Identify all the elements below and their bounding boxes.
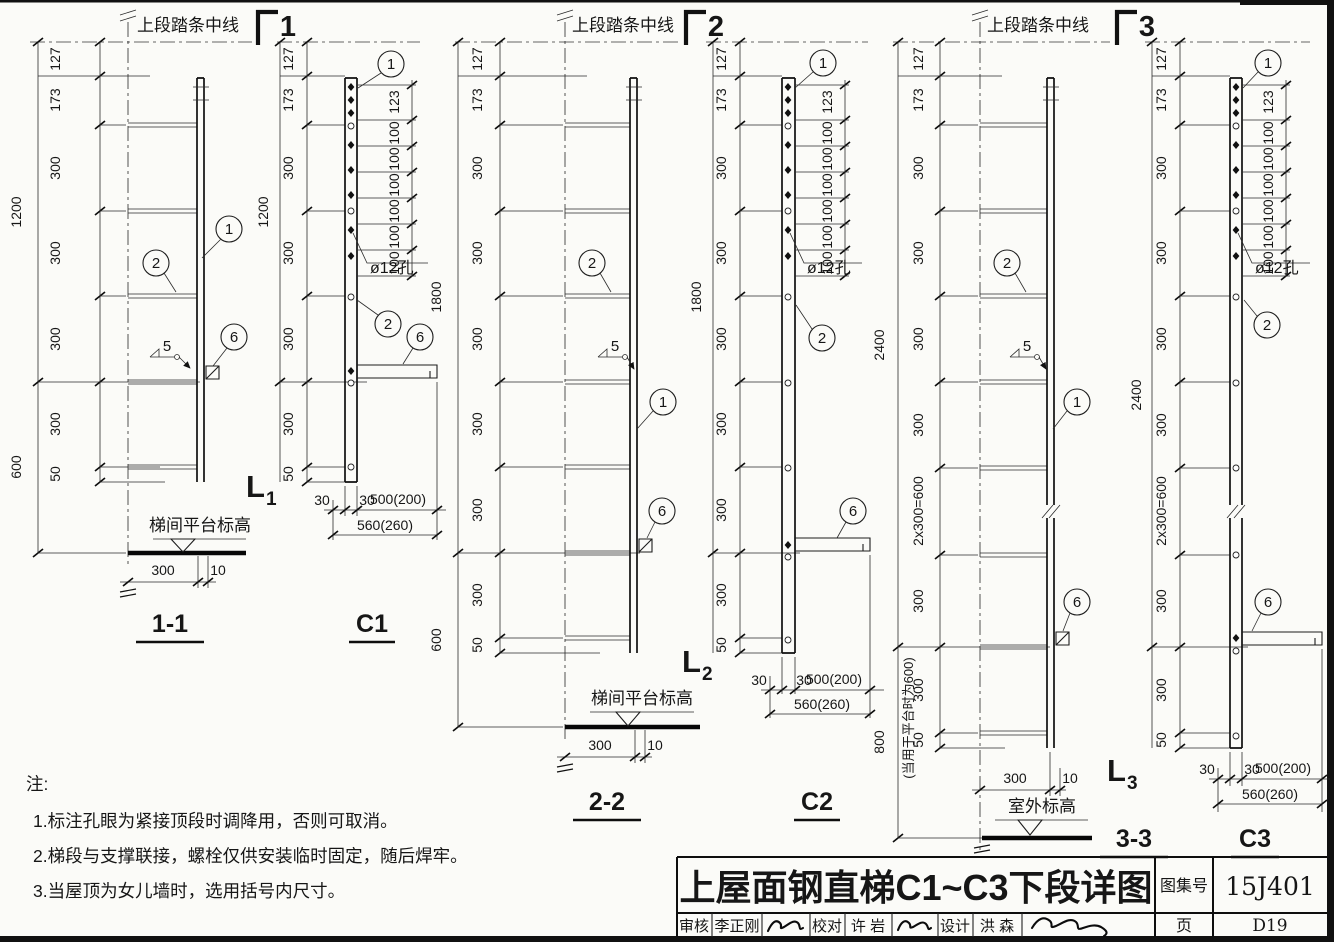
dim-label: 600 (428, 628, 444, 652)
dim-label: 100 (386, 225, 402, 249)
dim-label: 10 (1062, 770, 1078, 786)
atlas-label: 图集号 (1160, 877, 1208, 895)
signature (768, 921, 803, 931)
dim-label: 100 (819, 147, 835, 171)
section-number: 3 (1139, 11, 1155, 43)
callout-number: 2 (1003, 255, 1011, 272)
dim-label: 500(200) (370, 491, 426, 507)
page-number: D19 (1252, 916, 1287, 936)
dim-label: 50 (47, 466, 63, 482)
weld-symbol: 5 (1010, 338, 1046, 369)
callout-number: 2 (588, 255, 596, 272)
dim-label: 300 (713, 241, 729, 265)
check-label: 校对 (812, 918, 842, 935)
top-centerline-label: 上段踏条中线 (137, 16, 239, 35)
support-arm (357, 365, 437, 378)
drawing-title: 上屋面钢直梯C1~C3下段详图 (679, 867, 1152, 908)
rungs (128, 123, 197, 469)
support-arm (1242, 632, 1322, 645)
dim-label: 800 (871, 730, 887, 754)
dim-label: 300 (910, 241, 926, 265)
rail (1230, 78, 1242, 748)
detail-c2: ø12孔 1800 127 173 300 300 300 300 300 30… (688, 38, 884, 820)
dim-label: 173 (910, 88, 926, 112)
dim-label: 300 (469, 156, 485, 180)
dim-label: 100 (1260, 121, 1276, 145)
weld-symbol: 5 (598, 338, 634, 369)
dim-label: 300 (910, 327, 926, 351)
top-centerline-label: 上段踏条中线 (572, 16, 674, 35)
ladder-mark: L (1107, 753, 1126, 788)
dim-label: 300 (469, 498, 485, 522)
elevation-marker (1018, 820, 1042, 835)
dim-label: 123 (386, 90, 402, 114)
dim-label: 100 (386, 199, 402, 223)
dim-label: 100 (1260, 147, 1276, 171)
dim-label: 300 (910, 678, 926, 702)
note-item: 1.标注孔眼为紧接顶段时调降用，否则可取消。 (33, 811, 398, 831)
dim-label: 100 (386, 147, 402, 171)
dim-label: 560(260) (1242, 786, 1298, 802)
dim-label: 300 (713, 412, 729, 436)
rungs (565, 123, 630, 640)
dim-label: 100 (386, 121, 402, 145)
view-title: 1-1 (152, 610, 188, 638)
dim-label: 300 (47, 241, 63, 265)
dim-label: 100 (819, 199, 835, 223)
dim-label: 300 (280, 412, 296, 436)
ladder-mark: L (682, 644, 701, 679)
auditor-name: 李正刚 (714, 918, 759, 935)
dim-label: 100 (1260, 173, 1276, 197)
elevation-3-3: 上段踏条中线 3 2400 800 (当用于平台时为600) 127 173 3… (871, 10, 1168, 857)
dim-label: 300 (280, 156, 296, 180)
dim-label: 300 (280, 241, 296, 265)
callout-number: 2 (818, 330, 826, 347)
dim-label: 300 (713, 327, 729, 351)
callout-number: 1 (225, 221, 233, 238)
dim-label: 100 (819, 121, 835, 145)
dim-label: 173 (280, 88, 296, 112)
dim-label: 300 (47, 156, 63, 180)
dim-label: 100 (819, 251, 835, 275)
dim-label: 600 (8, 455, 24, 479)
dim-label: 173 (713, 88, 729, 112)
dim-label: 127 (469, 47, 485, 71)
dim-label: 127 (1153, 47, 1169, 71)
ladder-mark-sub: 2 (702, 664, 713, 685)
dim-label: 100 (386, 251, 402, 275)
dim-label: 300 (1153, 241, 1169, 265)
dim-label: 10 (647, 737, 663, 753)
dim-label: 300 (588, 737, 612, 753)
dim-label: 2x300=600 (910, 476, 926, 546)
support-arm (795, 538, 870, 551)
view-title: 3-3 (1116, 825, 1152, 853)
rungs (980, 123, 1047, 735)
dim-label: 300 (469, 583, 485, 607)
dim-label: 300 (1153, 678, 1169, 702)
callout-number: 6 (1264, 594, 1272, 611)
dim-label: 1200 (8, 196, 24, 227)
section-number: 1 (280, 11, 296, 43)
dim-label: 127 (280, 47, 296, 71)
support-bracket (1056, 632, 1069, 645)
callout-number: 1 (1073, 394, 1081, 411)
callout-number: 1 (819, 55, 827, 72)
dim-label: 1800 (688, 281, 704, 312)
callout-number: 6 (1073, 594, 1081, 611)
weld-symbol: 5 (150, 338, 190, 368)
elevation-marker (171, 539, 195, 552)
weld-number: 5 (163, 338, 171, 355)
callout-number: 2 (384, 316, 392, 333)
stringer (197, 78, 204, 482)
dim-label: 300 (151, 562, 175, 578)
section-number: 2 (708, 11, 724, 43)
dim-label: 50 (280, 466, 296, 482)
dim-label: 1200 (255, 196, 271, 227)
stringer (630, 78, 637, 653)
notes: 注: 1.标注孔眼为紧接顶段时调降用，否则可取消。 2.梯段与支撑联接，螺栓仅供… (26, 774, 468, 901)
view-title: C2 (801, 788, 833, 816)
rail (782, 78, 795, 653)
dim-label: 300 (47, 412, 63, 436)
signature (1032, 918, 1107, 936)
dim-label: 10 (210, 562, 226, 578)
dim-label: 123 (819, 90, 835, 114)
dim-label: 560(260) (794, 696, 850, 712)
note-item: 3.当屋顶为女儿墙时，选用括号内尺寸。 (33, 881, 345, 901)
stringer (1047, 78, 1054, 748)
dim-label: 300 (469, 327, 485, 351)
dim-label: 500(200) (1255, 760, 1311, 776)
dim-label: 173 (1153, 88, 1169, 112)
dim-label: 300 (1153, 327, 1169, 351)
drawing-sheet: 上段踏条中线 1 1200 600 127 173 300 300 300 30… (0, 0, 1334, 942)
notes-heading: 注: (26, 774, 48, 794)
dim-label: 50 (1153, 732, 1169, 748)
section-cut-mark (1117, 12, 1137, 45)
dim-label: 50 (713, 637, 729, 653)
view-title: C3 (1239, 825, 1271, 853)
support-bracket (206, 366, 219, 379)
dim-label: 300 (1153, 413, 1169, 437)
dim-label: 127 (910, 47, 926, 71)
page-label: 页 (1176, 918, 1192, 935)
ladder-mark-sub: 3 (1127, 773, 1138, 794)
view-title: C1 (356, 610, 388, 638)
dim-label: 50 (469, 637, 485, 653)
callout-number: 2 (152, 255, 160, 272)
platform-label: 室外标高 (1008, 797, 1076, 816)
callout-number: 2 (1263, 317, 1271, 334)
dim-label: 300 (910, 156, 926, 180)
elevation-marker (616, 712, 640, 726)
callout-number: 6 (230, 329, 238, 346)
dim-label: 300 (713, 583, 729, 607)
audit-label: 审核 (679, 918, 709, 935)
dim-label: 2400 (871, 329, 887, 360)
callout-number: 1 (659, 394, 667, 411)
dim-label: 123 (1260, 90, 1276, 114)
checker-name: 许 岩 (851, 918, 885, 935)
dim-label: 50 (910, 732, 926, 748)
dim-label: 300 (1153, 589, 1169, 613)
dim-label: 30 (751, 672, 767, 688)
weld-number: 5 (1023, 338, 1031, 355)
detail-c3: ø12孔 2400 127 173 300 300 300 300 2x300=… (1128, 38, 1330, 857)
dim-label: 300 (47, 327, 63, 351)
dim-label: 127 (47, 47, 63, 71)
dim-label: 300 (713, 156, 729, 180)
elevation-1-1: 上段踏条中线 1 1200 600 127 173 300 300 300 30… (8, 10, 296, 642)
dim-label: 300 (280, 327, 296, 351)
dim-label: 300 (910, 589, 926, 613)
weld-number: 5 (611, 338, 619, 355)
dim-label: 100 (1260, 251, 1276, 275)
view-title: 2-2 (589, 788, 625, 816)
note-item: 2.梯段与支撑联接，螺栓仅供安装临时固定，随后焊牢。 (33, 846, 468, 866)
platform-label: 梯间平台标高 (591, 689, 693, 708)
ladder-mark: L (246, 469, 265, 504)
atlas-number: 15J401 (1225, 872, 1315, 901)
dim-note: (当用于平台时为600) (901, 657, 916, 778)
section-cut-mark (258, 12, 278, 45)
dim-label: 2400 (1128, 379, 1144, 410)
elevation-2-2: 上段踏条中线 2 1800 600 127 173 300 300 300 30… (428, 10, 724, 820)
callout-number: 6 (849, 503, 857, 520)
title-block: 上屋面钢直梯C1~C3下段详图 图集号 15J401 页 D19 审核 李正刚 … (677, 857, 1327, 937)
dim-label: 173 (469, 88, 485, 112)
dim-label: 100 (1260, 199, 1276, 223)
section-cut-mark (686, 12, 706, 45)
support-bracket (639, 539, 652, 552)
dim-label: 173 (47, 88, 63, 112)
dim-label: 30 (1199, 761, 1215, 777)
platform-label: 梯间平台标高 (149, 516, 251, 535)
ladder-mark-sub: 1 (266, 489, 277, 510)
dim-label: 100 (819, 173, 835, 197)
dim-label: 300 (910, 413, 926, 437)
bolt-holes (785, 83, 792, 549)
dim-label: 300 (1003, 770, 1027, 786)
signature (898, 921, 931, 930)
dim-label: 300 (1153, 156, 1169, 180)
top-centerline-label: 上段踏条中线 (987, 16, 1089, 35)
sheet-edges (0, 0, 1334, 942)
dim-label: 100 (819, 225, 835, 249)
detail-c1: ø12孔 1200 127 173 300 300 300 300 50 123… (255, 38, 446, 642)
dim-label: 100 (386, 173, 402, 197)
dim-label: 300 (469, 412, 485, 436)
dim-label: 1800 (428, 281, 444, 312)
design-label: 设计 (940, 918, 970, 935)
dim-label: 127 (713, 47, 729, 71)
callout-number: 1 (387, 56, 395, 73)
dim-label: 500(200) (806, 671, 862, 687)
dim-label: 560(260) (357, 517, 413, 533)
callout-number: 1 (1264, 55, 1272, 72)
dim-label: 2x300=600 (1153, 476, 1169, 546)
dim-label: 100 (1260, 225, 1276, 249)
callout-number: 6 (416, 329, 424, 346)
dim-label: 300 (469, 241, 485, 265)
rail (345, 78, 357, 482)
dim-label: 300 (713, 498, 729, 522)
dim-label: 30 (314, 492, 330, 508)
callout-number: 6 (658, 503, 666, 520)
designer-name: 洪 森 (980, 918, 1014, 935)
